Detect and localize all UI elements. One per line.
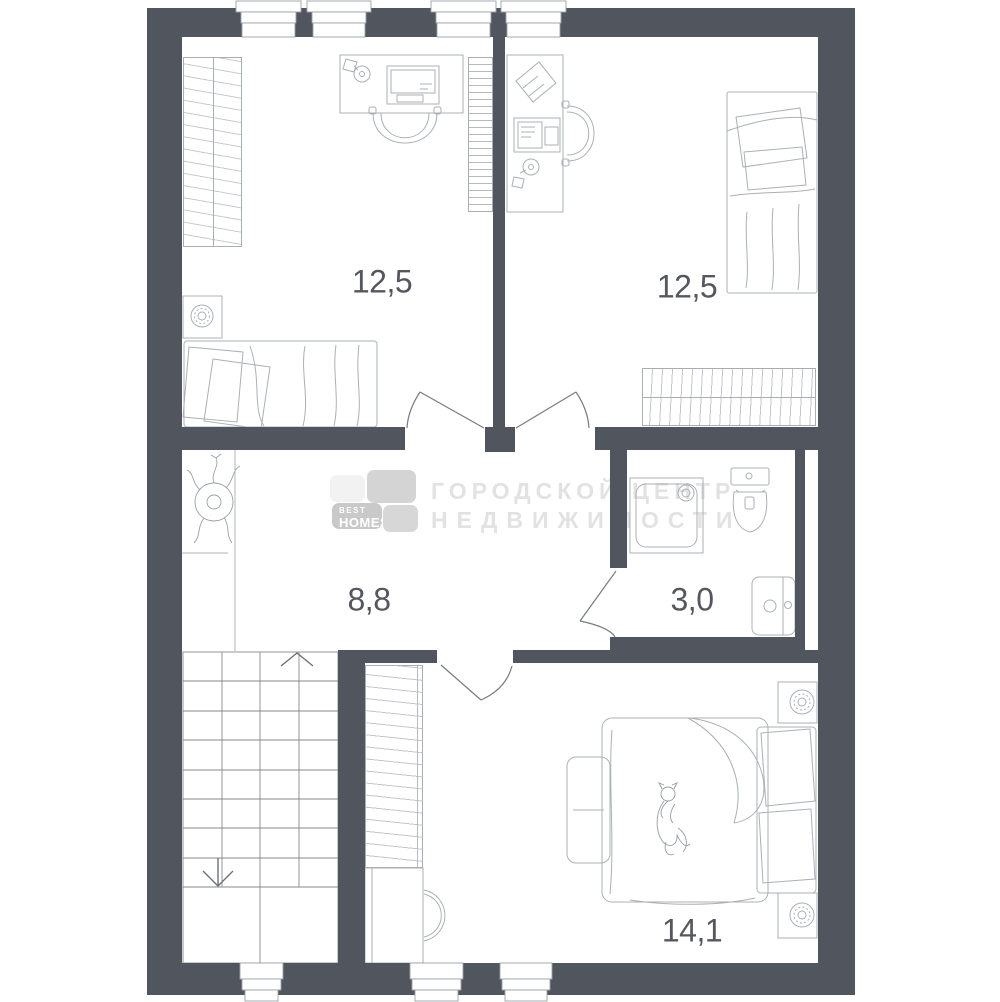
window-bottom-1 [240, 963, 283, 1001]
sink [752, 577, 795, 635]
window-top-3 [431, 1, 496, 37]
window-bottom-2 [410, 963, 463, 1001]
nightstand-bottom-bottom-room [778, 893, 817, 938]
double-bed-bottom-room [602, 718, 816, 904]
office-chair-top-right-room [562, 101, 594, 166]
windows [236, 1, 566, 1001]
bed-top-right-room [727, 92, 817, 293]
door-top-right-room [516, 392, 589, 428]
desk-top-right-room [507, 55, 563, 212]
area-label-bathroom: 3,0 [671, 582, 714, 619]
door-top-left-room [407, 392, 484, 428]
cabinet-bottom-room [365, 868, 445, 963]
area-label-top-left-room: 12,5 [352, 264, 412, 301]
door-bathroom [580, 571, 616, 637]
stair-railing [182, 450, 235, 651]
window-top-4 [501, 1, 566, 37]
bench-bottom-room [567, 757, 610, 863]
floor-plan-drawing [0, 0, 1000, 1002]
plant-icon [187, 454, 240, 543]
floor-plan-canvas: BEST HOMES ГОРОДСКОЙ ЦЕНТР НЕДВИЖИМОСТИ [0, 0, 1000, 1002]
bed-top-left-room [183, 341, 377, 429]
stairs-down-arrow-icon [203, 858, 233, 886]
cat-on-bed [657, 783, 690, 855]
window-top-1 [236, 1, 301, 37]
nightstand-top-left-room [183, 296, 222, 338]
nightstand-top-bottom-room [778, 682, 817, 723]
area-label-top-right-room: 12,5 [657, 269, 717, 306]
area-label-hallway: 8,8 [348, 582, 391, 619]
walls [147, 8, 855, 995]
staircase [183, 652, 338, 963]
window-bottom-3 [500, 963, 552, 1001]
shower-cabin [630, 478, 703, 553]
stairs-up-arrow-icon [281, 653, 313, 666]
toilet [731, 468, 769, 532]
door-bottom-room [441, 665, 512, 700]
desk-top-left-room [340, 55, 463, 113]
office-chair-top-left-room [369, 107, 441, 143]
window-top-2 [307, 1, 371, 37]
area-label-bottom-room: 14,1 [662, 913, 722, 950]
